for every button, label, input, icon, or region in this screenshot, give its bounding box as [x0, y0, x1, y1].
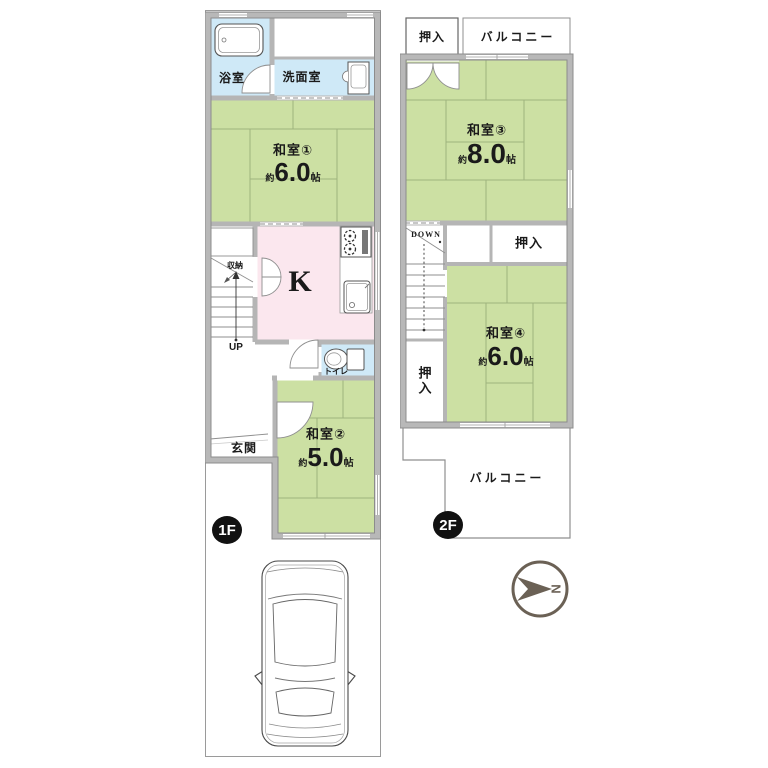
tatami4-unit: 帖: [524, 357, 534, 368]
washroom-label: 洗面室: [282, 71, 321, 83]
bathtub-icon: [215, 24, 263, 56]
closet-mid-label: 押入: [515, 237, 543, 250]
tatami1-approx: 約: [265, 173, 274, 183]
floor-plan-1f: 浴室 洗面室 和室① 約6.0帖 収納 UP K トイレ 玄関 和室② 約5.0…: [205, 10, 381, 758]
tatami1-size-value: 6.0: [274, 157, 310, 187]
storage-label: 収納: [227, 262, 243, 270]
tatami4-name: 和室④: [486, 327, 526, 340]
sink-icon: [344, 281, 370, 313]
tatami1-size: 約6.0帖: [265, 159, 320, 185]
entrance-label: 玄関: [231, 442, 257, 454]
tatami2-approx: 約: [298, 458, 307, 468]
tatami4-size: 約6.0帖: [478, 343, 533, 369]
compass-icon: N: [513, 562, 567, 616]
tatami2-size: 約5.0帖: [298, 444, 353, 470]
kitchen-counter: [340, 226, 372, 313]
floor-badge-2f: 2F: [433, 511, 463, 539]
compass-north-label: N: [549, 584, 564, 593]
tatami1-unit: 帖: [311, 173, 321, 184]
tatami2-unit: 帖: [344, 458, 354, 469]
stairs-up-label: UP: [229, 343, 243, 353]
floor-plan-2f: N 押入 バルコニー 和室③ 約8.0帖 DOWN 押入 和室④ 約6.0帖 押…: [400, 12, 575, 657]
balcony-top-label: バルコニー: [481, 31, 556, 43]
toilet-label: トイレ: [324, 368, 348, 376]
tatami3-name: 和室③: [467, 124, 507, 137]
tatami3-approx: 約: [458, 155, 467, 165]
tatami4-size-value: 6.0: [487, 341, 523, 371]
floorplan-page: 浴室 洗面室 和室① 約6.0帖 収納 UP K トイレ 玄関 和室② 約5.0…: [0, 0, 768, 768]
balcony-bottom-label: バルコニー: [470, 472, 545, 484]
stairs-down-label: DOWN: [411, 231, 441, 239]
floor-badge-1f: 1F: [212, 516, 242, 544]
tatami1-name: 和室①: [273, 144, 313, 157]
closet-left-label: 押入: [418, 366, 431, 396]
car-icon: [255, 561, 355, 746]
kitchen-label: K: [288, 267, 311, 297]
tatami2-name: 和室②: [306, 428, 346, 441]
closet-top-label: 押入: [419, 31, 445, 43]
tatami4-approx: 約: [478, 357, 487, 367]
stove-icon: [341, 227, 371, 257]
floor-plan-1f-drawing: [205, 10, 381, 758]
tatami3-unit: 帖: [506, 155, 516, 166]
tatami3-size-value: 8.0: [467, 138, 506, 169]
tatami2-size-value: 5.0: [307, 442, 343, 472]
tatami3-size: 約8.0帖: [458, 140, 516, 168]
bath-label: 浴室: [219, 72, 245, 84]
